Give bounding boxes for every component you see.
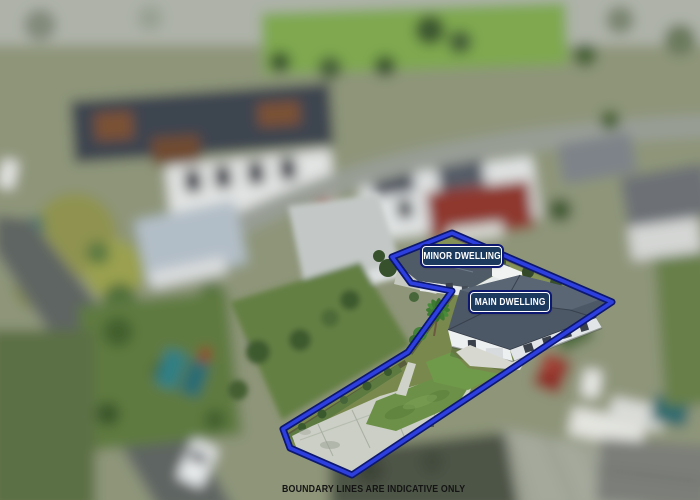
disclaimer-text-content: BOUNDARY LINES ARE INDICATIVE ONLY [282,483,465,495]
aerial-scene [0,0,700,500]
park-field [261,2,568,75]
disclaimer-text: BOUNDARY LINES ARE INDICATIVE ONLY [282,483,465,497]
aerial-photo: MINOR DWELLING MAIN DWELLING BOUNDARY LI… [0,0,700,500]
minor-dwelling-label: MINOR DWELLING [422,246,502,266]
main-dwelling-label: MAIN DWELLING [470,292,550,312]
minor-dwelling-label-text: MINOR DWELLING [423,251,500,262]
main-dwelling-label-text: MAIN DWELLING [475,297,546,308]
bottom-right-roof [596,438,700,500]
